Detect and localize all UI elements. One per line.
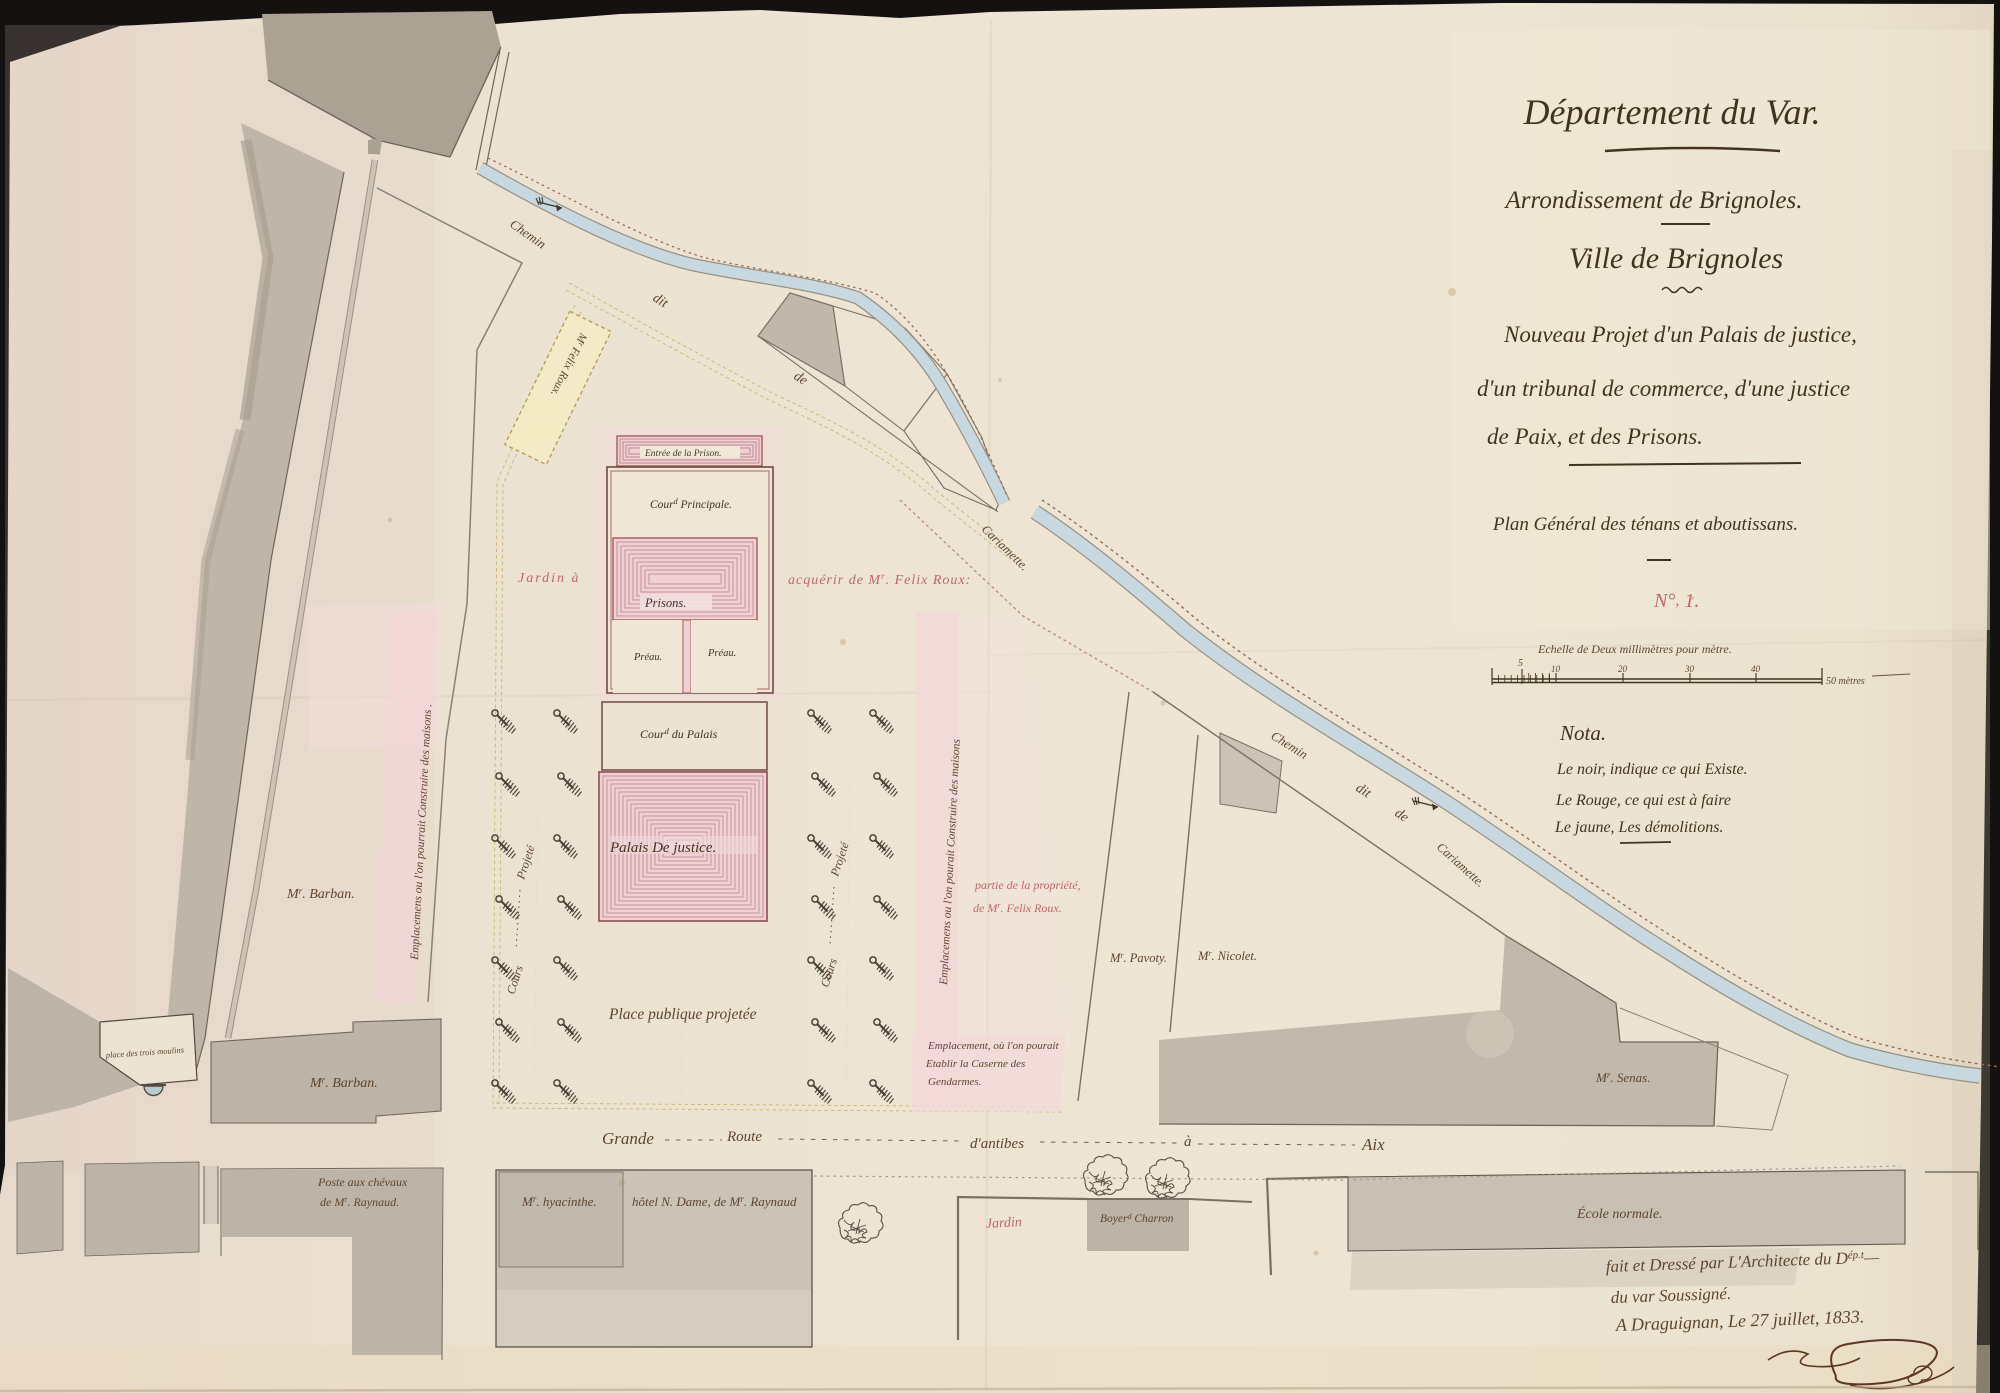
svg-text:Jardin à: Jardin à: [518, 571, 581, 586]
svg-text:5: 5: [1518, 658, 1523, 669]
svg-text:Aix: Aix: [1361, 1135, 1385, 1154]
svg-text:Entrée de la Prison.: Entrée de la Prison.: [644, 449, 722, 459]
svg-text:d'antibes: d'antibes: [970, 1136, 1024, 1152]
svg-text:Ville de Brignoles: Ville de Brignoles: [1569, 242, 1783, 275]
svg-text:de Mr. Raynaud.: de Mr. Raynaud.: [320, 1195, 399, 1209]
svg-text:Le jaune, Les démolitions.: Le jaune, Les démolitions.: [1554, 819, 1723, 836]
svg-text:Grande: Grande: [602, 1129, 654, 1148]
svg-text:Mr. Nicolet.: Mr. Nicolet.: [1197, 949, 1257, 963]
svg-text:d'un tribunal de commerce, d'u: d'un tribunal de commerce, d'une justice: [1477, 376, 1850, 401]
svg-text:Mr. hyacinthe.: Mr. hyacinthe.: [521, 1194, 597, 1209]
svg-text:Echelle de Deux millimètres po: Echelle de Deux millimètres pour mètre.: [1537, 642, 1732, 656]
svg-text:de Mr. Felix Roux.: de Mr. Felix Roux.: [973, 901, 1062, 915]
svg-text:Mr. Senas.: Mr. Senas.: [1595, 1070, 1650, 1085]
svg-text:Place publique projetée: Place publique projetée: [608, 1006, 757, 1023]
svg-text:partie de la propriété,: partie de la propriété,: [974, 878, 1081, 892]
svg-text:Mr. Barban.: Mr. Barban.: [309, 1075, 378, 1091]
svg-text:École normale.: École normale.: [1576, 1205, 1663, 1222]
svg-text:Nouveau Projet d'un Palais de: Nouveau Projet d'un Palais de justice,: [1503, 322, 1857, 347]
svg-text:acquérir de Mr. Felix Roux:: acquérir de Mr. Felix Roux:: [788, 571, 971, 588]
svg-text:Palais De justice.: Palais De justice.: [609, 840, 716, 856]
svg-text:Boyerd Charron: Boyerd Charron: [1100, 1212, 1174, 1225]
svg-text:Arrondissement de Brignoles.: Arrondissement de Brignoles.: [1504, 187, 1803, 214]
svg-text:Jardin: Jardin: [985, 1215, 1022, 1232]
svg-text:Prisons.: Prisons.: [644, 596, 686, 610]
svg-text:Etablir la Caserne des: Etablir la Caserne des: [925, 1058, 1025, 1070]
svg-text:Courd Principale.: Courd Principale.: [650, 497, 732, 511]
svg-text:Le Rouge, ce qui est à faire: Le Rouge, ce qui est à faire: [1555, 792, 1731, 809]
svg-text:10: 10: [1551, 664, 1561, 674]
svg-text:hôtel N. Dame, de Mr. Raynaud: hôtel N. Dame, de Mr. Raynaud: [632, 1194, 797, 1209]
svg-text:N°, 1.: N°, 1.: [1653, 590, 1699, 612]
svg-text:Gendarmes.: Gendarmes.: [928, 1076, 981, 1088]
svg-text:Nota.: Nota.: [1559, 721, 1606, 745]
svg-text:30: 30: [1684, 664, 1695, 674]
svg-text:Courd du Palais: Courd du Palais: [640, 727, 718, 741]
svg-text:Mr. Barban.: Mr. Barban.: [286, 886, 355, 902]
svg-text:40: 40: [1751, 664, 1761, 674]
svg-text:Département du Var.: Département du Var.: [1523, 92, 1821, 132]
svg-text:Poste aux chévaux: Poste aux chévaux: [317, 1175, 408, 1189]
svg-text:de Paix, et des Prisons.: de Paix, et des Prisons.: [1487, 424, 1703, 449]
svg-text:à: à: [1184, 1134, 1192, 1150]
svg-text:Préau.: Préau.: [707, 648, 736, 659]
svg-text:20: 20: [1618, 664, 1628, 674]
svg-text:Préau.: Préau.: [633, 652, 662, 663]
svg-text:Route: Route: [726, 1129, 762, 1145]
svg-text:Emplacement, où l'on pourait: Emplacement, où l'on pourait: [927, 1040, 1060, 1052]
svg-text:Mr. Pavoty.: Mr. Pavoty.: [1109, 951, 1167, 965]
svg-text:50 mètres: 50 mètres: [1826, 676, 1865, 687]
svg-text:Plan Général des ténans et abo: Plan Général des ténans et aboutissans.: [1492, 514, 1798, 535]
svg-text:Le noir, indique ce qui Existe: Le noir, indique ce qui Existe.: [1556, 761, 1748, 778]
